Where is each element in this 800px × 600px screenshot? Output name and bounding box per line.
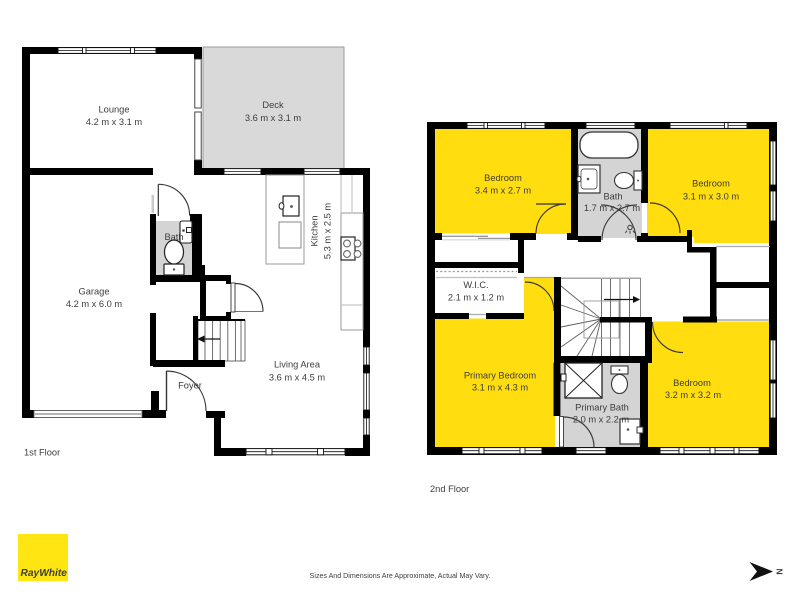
svg-text:Deck: Deck (262, 100, 284, 110)
svg-text:N: N (775, 569, 785, 575)
svg-text:Bath: Bath (603, 191, 622, 201)
svg-text:Bath: Bath (164, 232, 183, 242)
svg-text:Primary Bath: Primary Bath (575, 402, 629, 412)
svg-text:Kitchen: Kitchen (309, 215, 319, 246)
svg-text:1.7 m x 2.7 m: 1.7 m x 2.7 m (584, 203, 641, 213)
svg-text:3.1 m x 3.0 m: 3.1 m x 3.0 m (683, 191, 740, 201)
svg-text:2nd Floor: 2nd Floor (430, 484, 469, 494)
svg-text:Bedroom: Bedroom (673, 378, 711, 388)
svg-text:Bedroom: Bedroom (484, 173, 522, 183)
svg-text:3.6 m x 4.5 m: 3.6 m x 4.5 m (269, 372, 326, 382)
svg-text:2.1 m x 1.2 m: 2.1 m x 1.2 m (448, 292, 505, 302)
svg-text:Garage: Garage (78, 286, 109, 296)
svg-text:3.2 m x 3.2 m: 3.2 m x 3.2 m (665, 390, 722, 400)
svg-text:4.2 m x 6.0 m: 4.2 m x 6.0 m (66, 299, 123, 309)
svg-text:1st Floor: 1st Floor (24, 447, 60, 457)
svg-text:Sizes And Dimensions Are Appro: Sizes And Dimensions Are Approximate, Ac… (310, 572, 491, 580)
svg-text:3.6 m x 3.1 m: 3.6 m x 3.1 m (245, 113, 302, 123)
svg-text:5.3 m x 2.5 m: 5.3 m x 2.5 m (322, 203, 332, 260)
svg-text:Primary Bedroom: Primary Bedroom (464, 371, 537, 381)
svg-text:W.I.C.: W.I.C. (463, 280, 488, 290)
svg-text:Bedroom: Bedroom (692, 178, 730, 188)
svg-text:RayWhite: RayWhite (21, 568, 68, 579)
svg-text:Living Area: Living Area (274, 359, 321, 369)
svg-text:Foyer: Foyer (178, 380, 202, 390)
svg-text:2.0 m x 2.2 m: 2.0 m x 2.2 m (573, 415, 630, 425)
svg-text:Lounge: Lounge (98, 104, 129, 114)
svg-text:3.1 m x 4.3 m: 3.1 m x 4.3 m (472, 382, 529, 392)
svg-text:4.2 m x 3.1 m: 4.2 m x 3.1 m (86, 117, 143, 127)
svg-text:3.4 m x 2.7 m: 3.4 m x 2.7 m (475, 185, 532, 195)
